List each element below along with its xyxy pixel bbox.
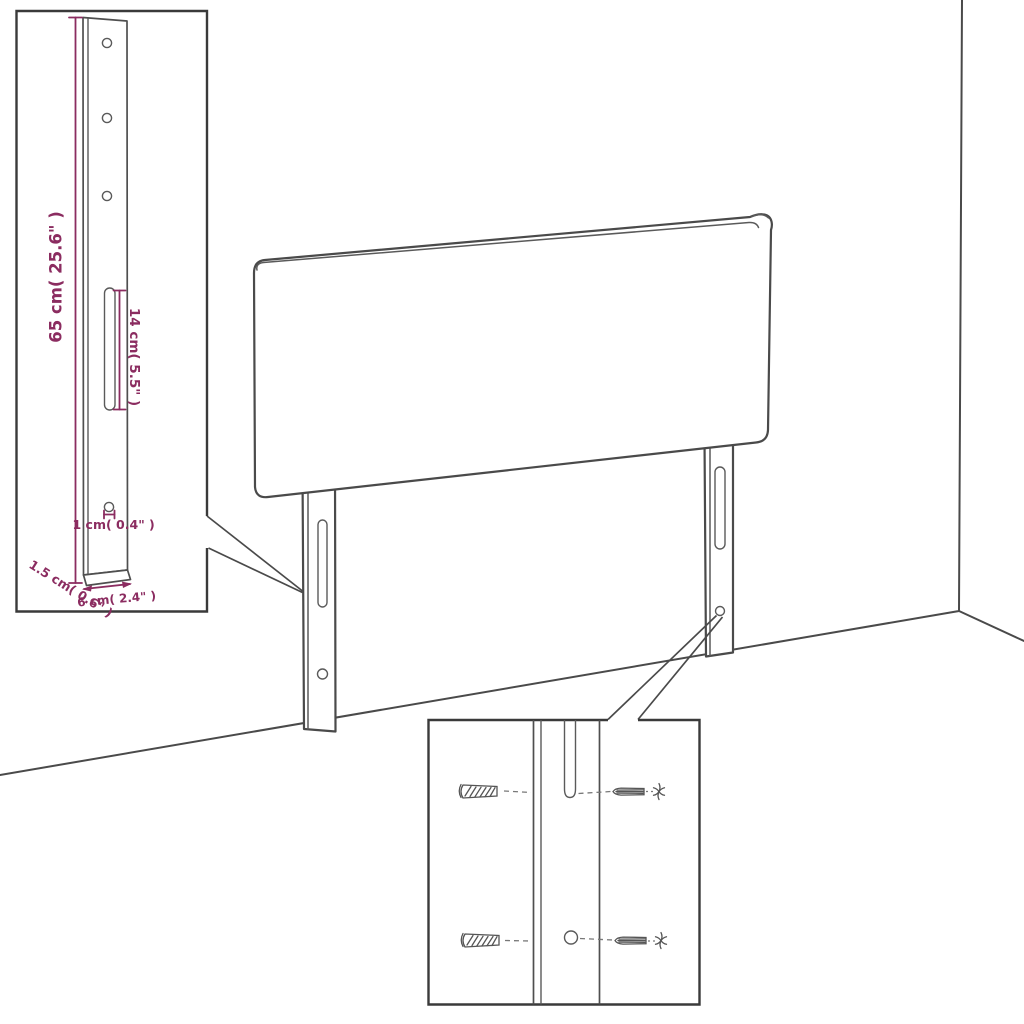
slot-dimension-label: 14 cm( 5.5" ) <box>126 308 142 406</box>
leg-strip-detail <box>534 720 600 1005</box>
height-dimension-label: 65 cm( 25.6" ) <box>47 211 66 343</box>
wall-plug-icon <box>459 785 497 799</box>
screw-icon <box>613 784 665 800</box>
leg-hole-detail <box>565 931 578 944</box>
assembly-diagram: 65 cm( 25.6" ) 14 cm( 5.5" ) 1 cm( 0.4" … <box>0 0 1024 1024</box>
hardware-row-bottom <box>461 933 666 949</box>
diagram-canvas: 65 cm( 25.6" ) 14 cm( 5.5" ) 1 cm( 0.4" … <box>0 0 1024 1024</box>
headboard-panel <box>254 214 772 497</box>
bracket-detail-inset: 65 cm( 25.6" ) 14 cm( 5.5" ) 1 cm( 0.4" … <box>17 11 208 620</box>
dimension-height: 65 cm( 25.6" ) <box>47 18 83 584</box>
screws-detail-inset <box>429 720 700 1005</box>
bracket-outline <box>83 18 131 586</box>
hardware-row-top <box>459 784 664 800</box>
leg-slot-detail <box>565 720 576 798</box>
floor-line-right <box>959 611 1024 641</box>
headboard-left-leg <box>303 468 336 732</box>
screw-icon <box>615 933 667 949</box>
wall-plug-icon <box>461 934 499 948</box>
hole-dimension-label: 1 cm( 0.4" ) <box>73 517 155 532</box>
callout-wedge-left <box>207 516 303 593</box>
